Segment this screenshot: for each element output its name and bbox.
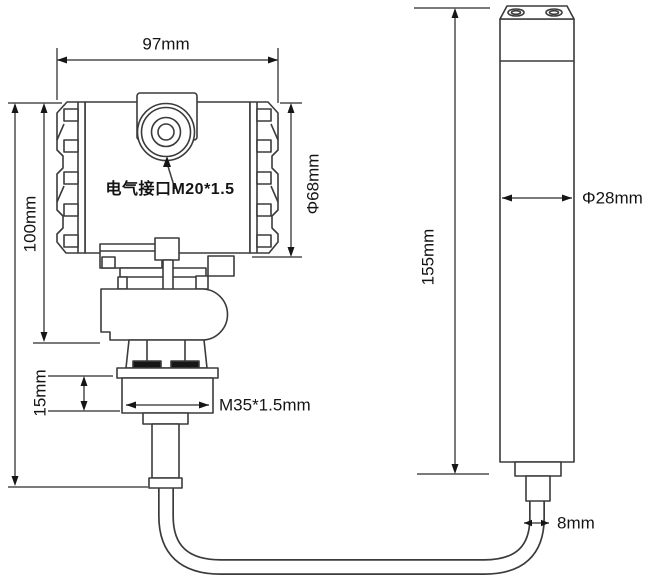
- arrow-8-left: [524, 520, 532, 526]
- probe-body: [500, 19, 574, 462]
- dim-label-nut-height: 15mm: [32, 369, 49, 416]
- arrow-100-top: [41, 103, 48, 113]
- arrow-155-bottom: [452, 464, 459, 474]
- dim-label-probe-length: 155mm: [420, 229, 437, 286]
- arrow-15-top: [81, 376, 88, 386]
- arrow-overall-bottom: [12, 476, 19, 486]
- probe-step-1: [515, 462, 561, 476]
- technical-drawing-canvas: 97mm 100mm Φ68mm 电气接口M20*1.5 15mm M35*1.…: [0, 0, 650, 584]
- washer-plate: [117, 368, 218, 378]
- arrow-97-left: [57, 57, 67, 64]
- left-end-cap: [57, 102, 85, 253]
- arrow-overall-top: [12, 103, 19, 113]
- cable-outline: [166, 486, 537, 567]
- dim-label-cable-diameter: 8mm: [557, 515, 595, 532]
- dim-label-probe-diameter: Φ28mm: [582, 190, 643, 207]
- label-thread-spec: M35*1.5mm: [219, 397, 311, 414]
- dim-label-head-height: 100mm: [22, 196, 39, 253]
- arrow-15-bottom: [81, 401, 88, 411]
- cable-core: [166, 485, 537, 567]
- arrow-8-right: [541, 520, 549, 526]
- dim-label-head-width: 97mm: [142, 36, 189, 53]
- cable: [166, 485, 537, 567]
- arrow-68-top: [288, 103, 295, 113]
- arrow-97-right: [268, 57, 278, 64]
- arrow-68-bottom: [288, 247, 295, 257]
- probe-step-2: [526, 476, 550, 501]
- electrical-connector: [137, 93, 197, 161]
- sensor-module: [101, 289, 228, 340]
- probe: [500, 6, 574, 501]
- extension-pipe: [152, 424, 179, 478]
- collar: [143, 413, 188, 424]
- process-connection: [117, 340, 218, 488]
- arrow-155-top: [452, 8, 459, 18]
- pipe-end-cap: [149, 478, 182, 488]
- arrow-100-bottom: [41, 332, 48, 342]
- right-end-cap: [250, 102, 278, 253]
- dim-label-head-diameter: Φ68mm: [305, 154, 322, 215]
- label-electrical-port: 电气接口M20*1.5: [105, 182, 234, 198]
- transmitter: [57, 93, 278, 488]
- dimension-drawing: [0, 0, 650, 584]
